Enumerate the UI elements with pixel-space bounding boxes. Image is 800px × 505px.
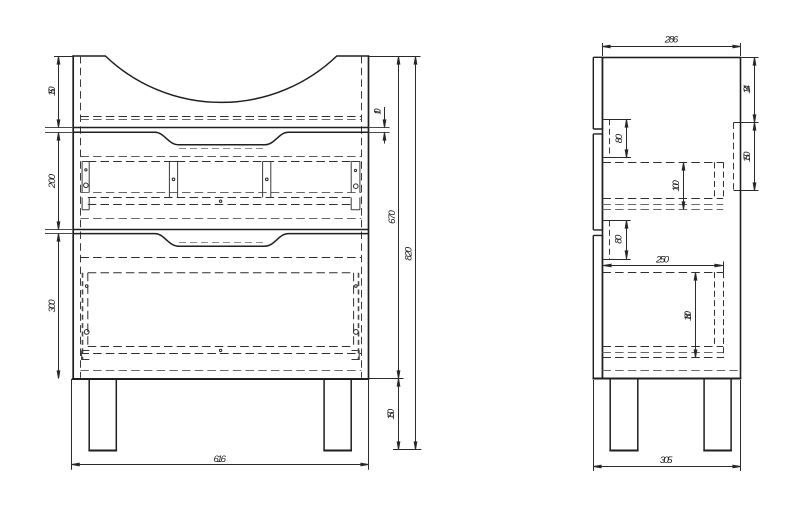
svg-text:286: 286 xyxy=(664,35,679,46)
svg-text:10: 10 xyxy=(372,108,383,115)
svg-text:100: 100 xyxy=(671,180,682,192)
svg-text:150: 150 xyxy=(47,86,58,96)
svg-text:300: 300 xyxy=(47,299,58,313)
svg-text:200: 200 xyxy=(47,173,58,189)
svg-text:670: 670 xyxy=(387,209,398,223)
svg-text:820: 820 xyxy=(403,246,414,260)
svg-text:134: 134 xyxy=(742,85,753,94)
svg-text:80: 80 xyxy=(614,133,625,143)
svg-text:305: 305 xyxy=(660,455,673,466)
svg-text:180: 180 xyxy=(683,310,694,321)
svg-text:80: 80 xyxy=(613,234,624,244)
svg-text:150: 150 xyxy=(742,151,753,162)
svg-text:250: 250 xyxy=(655,255,670,266)
svg-text:150: 150 xyxy=(386,408,397,419)
svg-text:616: 616 xyxy=(213,454,226,465)
